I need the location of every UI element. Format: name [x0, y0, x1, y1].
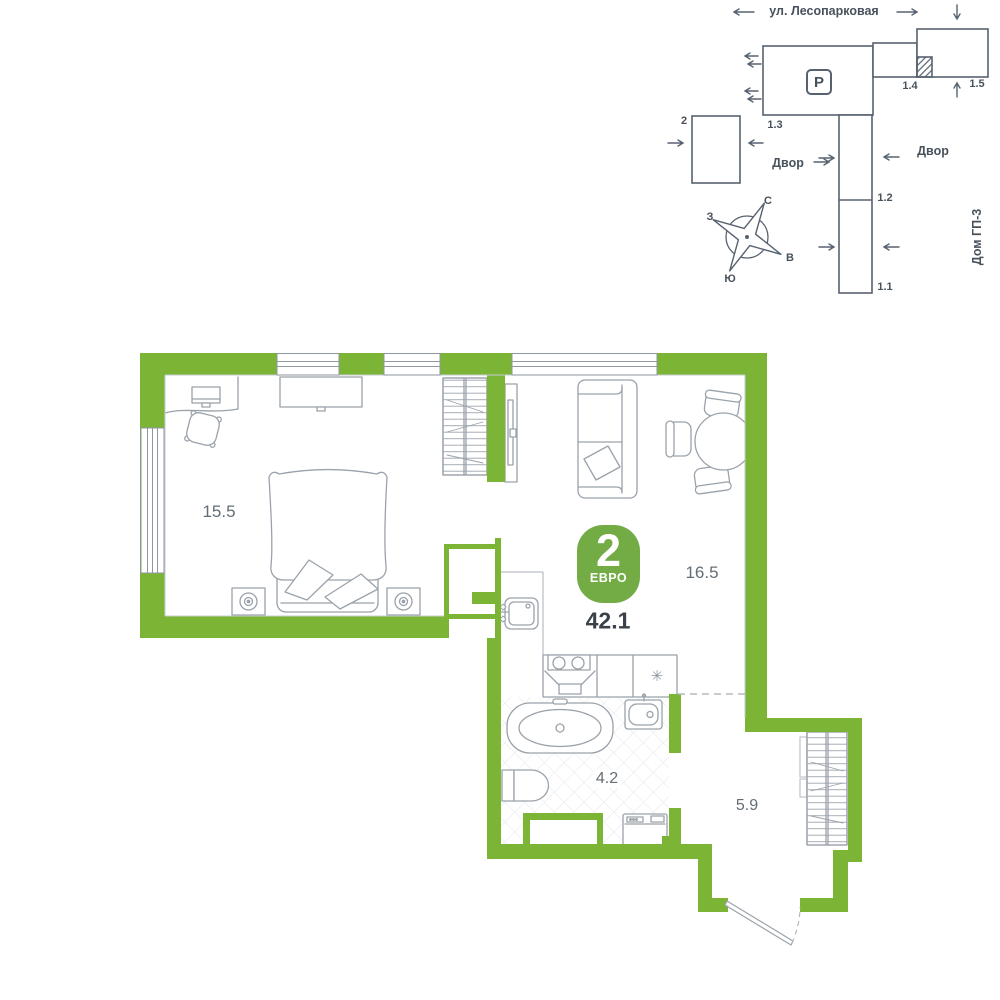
vent-shaft-icon [447, 547, 501, 617]
compass-north-label: С [764, 195, 772, 207]
yard-label: Двор [772, 156, 804, 170]
total-area-label: 42.1 [586, 608, 631, 635]
desk-chair-icon [184, 410, 222, 448]
layout-type-label: ЕВРО [590, 571, 627, 585]
walls [140, 353, 862, 912]
building-tower [839, 115, 872, 293]
living-wardrobe-icon [443, 378, 487, 475]
current-section-marker [917, 57, 932, 77]
window-icon [512, 354, 657, 376]
bedroom-area-label: 15.5 [202, 502, 235, 522]
block-2-label: 2 [681, 115, 687, 127]
window-icon [141, 428, 164, 573]
nightstand-icon [232, 588, 265, 615]
nightstand-icon [387, 588, 420, 615]
street-label: ул. Лесопарковая [769, 4, 878, 18]
bathtub-icon [507, 699, 613, 753]
compass-west-label: З [707, 211, 714, 223]
kitchen-sink-icon [500, 598, 538, 629]
hallway-wardrobe-icon [800, 732, 847, 845]
compass-east-label: В [786, 252, 794, 264]
fridge-icon: ✳ [651, 667, 664, 685]
parking-icon: P [806, 69, 832, 95]
desk-icon [165, 377, 238, 413]
toilet-icon [502, 770, 549, 801]
entrance-door-icon [725, 901, 800, 945]
sofa-icon [578, 380, 637, 498]
block-1-1-label: 1.1 [877, 281, 892, 293]
building-connector [873, 43, 917, 77]
compass-south-label: Ю [724, 273, 735, 285]
window-icon [277, 354, 339, 376]
washing-machine-icon [623, 814, 667, 845]
floorplan-page: ул. Лесопарковая 2 1.3 1.4 1.5 1.2 1.1 Д… [0, 0, 1000, 1000]
block-1-3-label: 1.3 [767, 119, 782, 131]
dining-chair-icon [666, 421, 691, 457]
bedroom-wardrobe-icon [280, 377, 362, 411]
bathroom-area-label: 4.2 [593, 770, 621, 788]
block-1-5-label: 1.5 [969, 78, 984, 90]
bed-icon [269, 470, 387, 613]
room-count-badge: 2 ЕВРО [577, 525, 640, 603]
living-area-label: 16.5 [685, 563, 718, 583]
tv-stand-icon [505, 384, 517, 482]
hallway-area-label: 5.9 [736, 797, 758, 815]
bathroom-tab-inset [530, 820, 597, 844]
building-2 [692, 116, 740, 183]
block-1-4-label: 1.4 [902, 80, 917, 92]
plan-canvas [0, 0, 1000, 1000]
room-count: 2 [596, 527, 621, 574]
neighbor-house-label: Дом ГП-3 [970, 209, 984, 265]
compass-icon [713, 203, 781, 271]
window-icon [384, 354, 440, 376]
block-1-2-label: 1.2 [877, 192, 892, 204]
dining-table-icon [695, 413, 752, 470]
yard-label: Двор [917, 144, 949, 158]
